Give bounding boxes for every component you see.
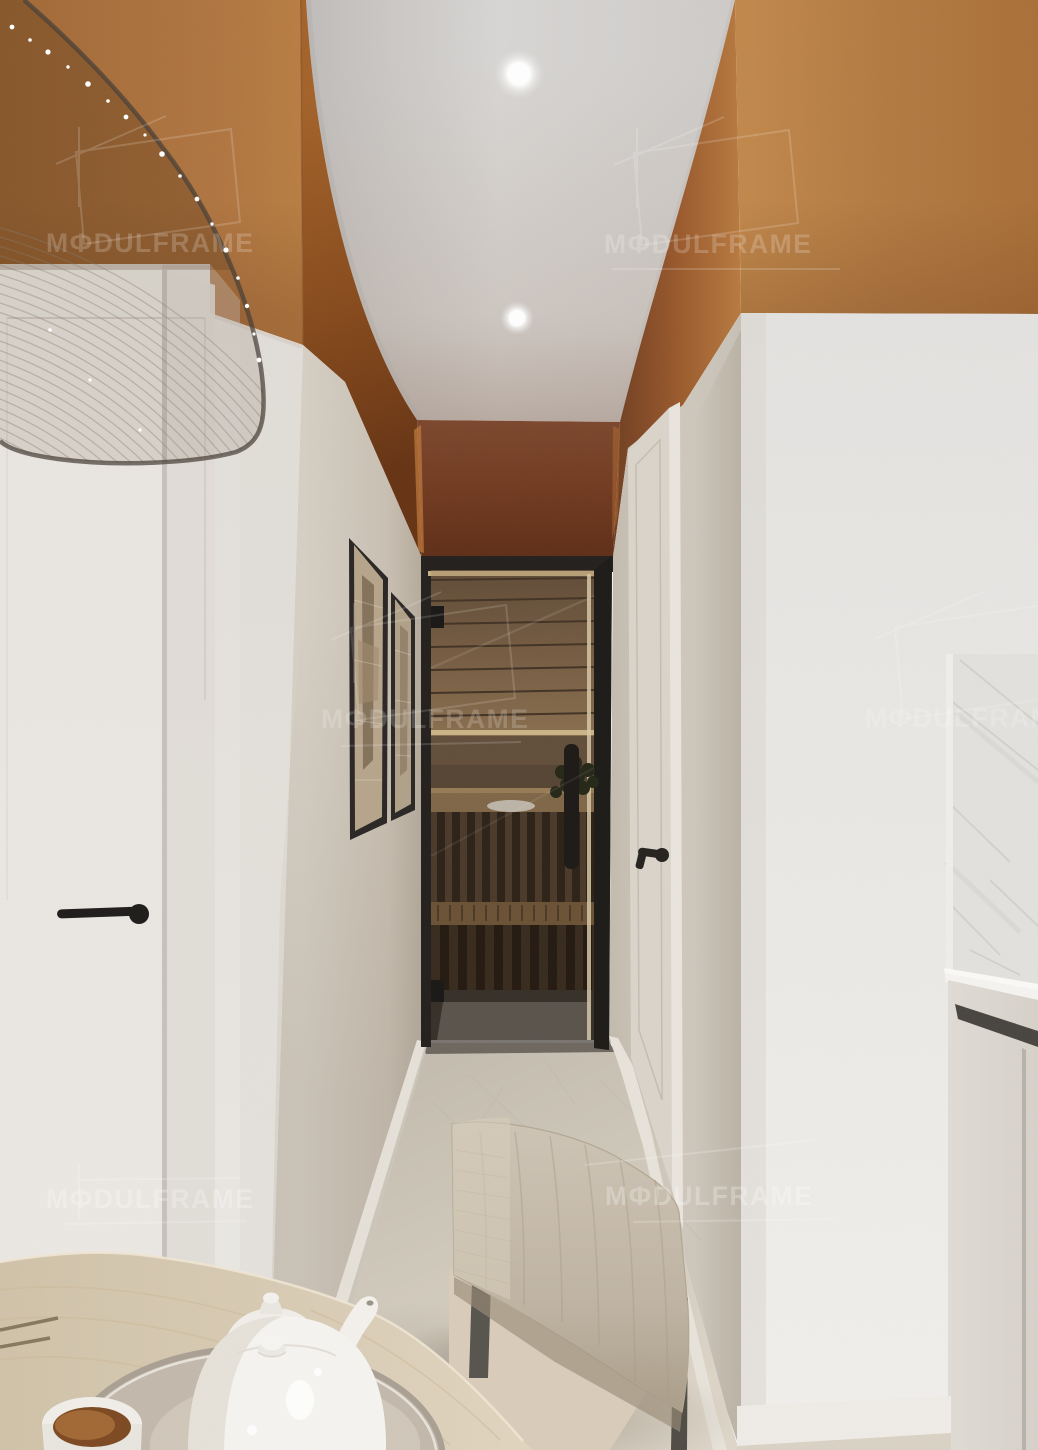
svg-text:MФDULFRAME: MФDULFRAME [321, 704, 529, 734]
svg-text:MФDULFRAME: MФDULFRAME [46, 1184, 254, 1214]
svg-text:MФDULFRAME: MФDULFRAME [604, 229, 812, 259]
svg-text:MФDULFRAME: MФDULFRAME [46, 228, 254, 258]
svg-text:MФDULFRAME: MФDULFRAME [605, 1181, 813, 1211]
svg-text:MФDULFRAME: MФDULFRAME [865, 703, 1038, 733]
